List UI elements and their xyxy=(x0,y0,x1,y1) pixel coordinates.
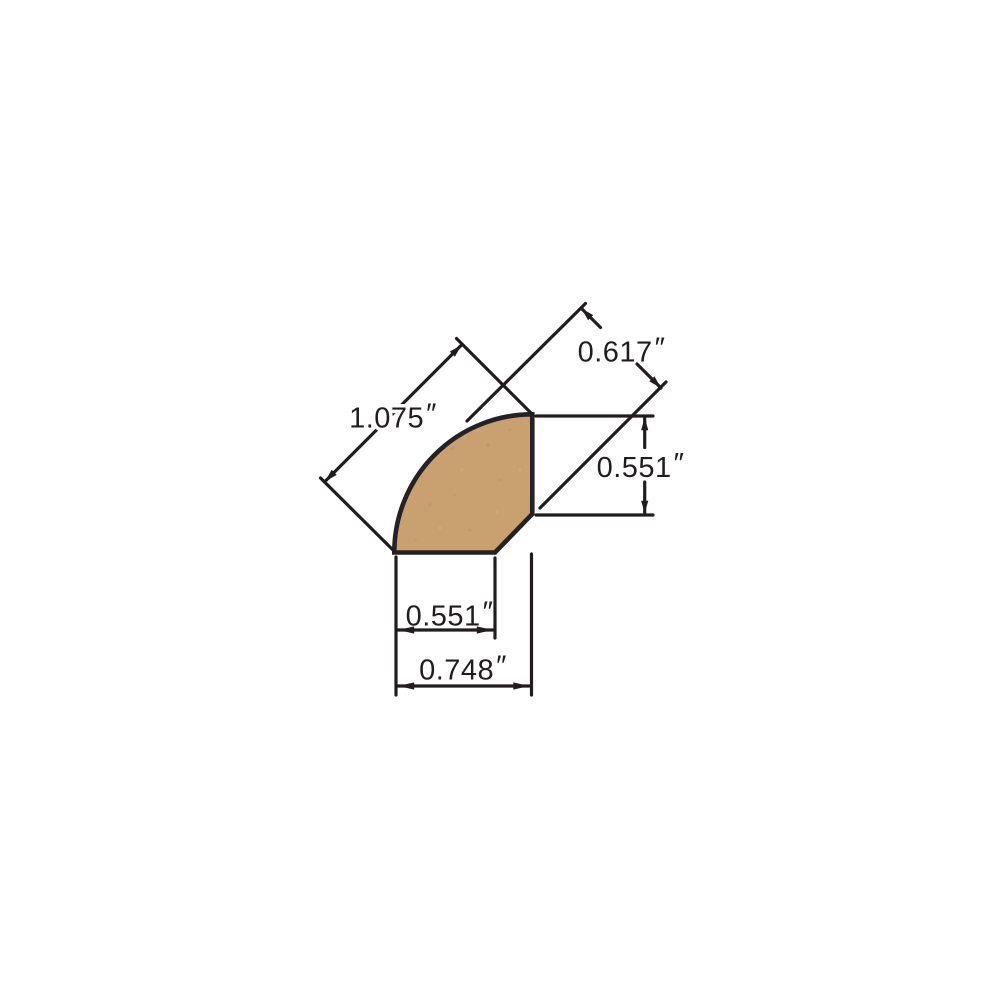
svg-text:0.551″: 0.551″ xyxy=(597,448,685,484)
svg-text:0.617″: 0.617″ xyxy=(578,333,666,369)
svg-text:1.075″: 1.075″ xyxy=(349,399,437,435)
svg-text:0.551″: 0.551″ xyxy=(406,597,494,633)
svg-text:0.748″: 0.748″ xyxy=(419,651,507,687)
